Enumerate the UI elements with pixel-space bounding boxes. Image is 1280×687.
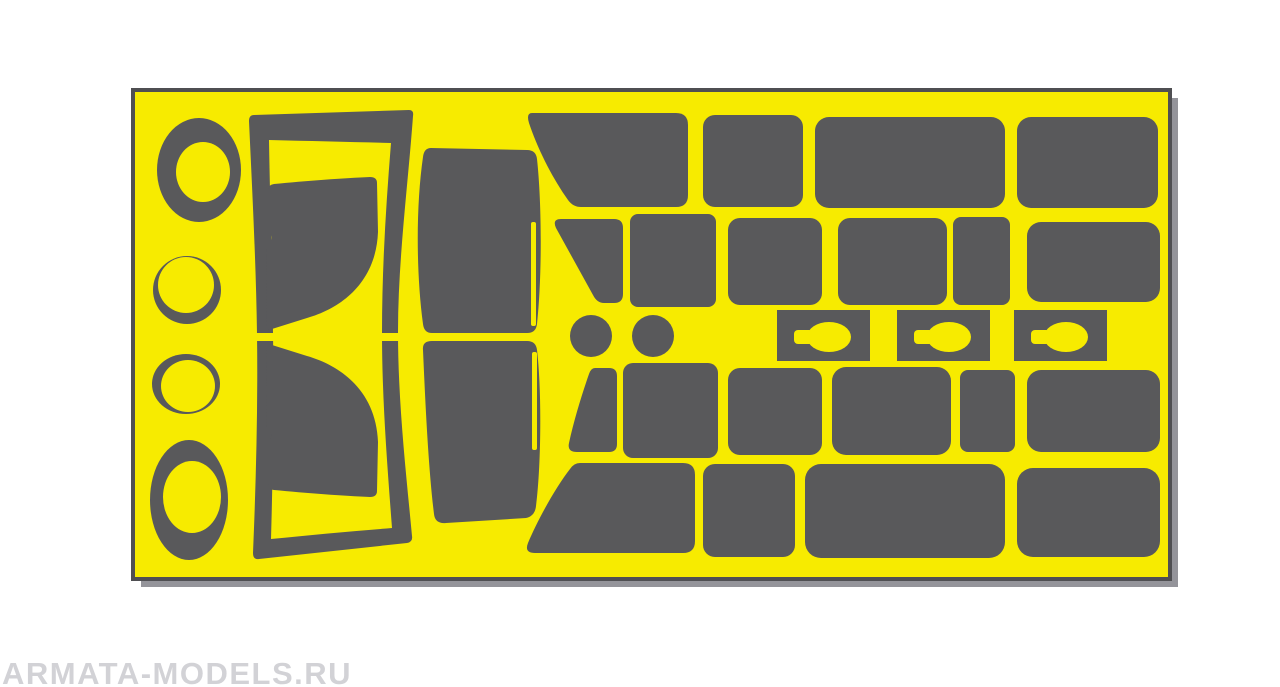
product-image: ARMATA-MODELS.RU: [0, 0, 1280, 687]
side-window-mask-row1-c: [1017, 117, 1158, 208]
side-window-mask-row1-a: [703, 115, 803, 207]
watermark: ARMATA-MODELS.RU: [2, 656, 352, 687]
side-window-mask-row4-b: [728, 368, 822, 455]
round-mask-small-b: [632, 315, 674, 357]
side-window-mask-row4-c: [832, 367, 951, 455]
side-window-mask-row5-b: [805, 464, 1005, 558]
keyhole-cutout-bow-1: [807, 322, 851, 352]
mask-sheet: [133, 90, 1178, 587]
windshield-top-slit: [531, 222, 536, 326]
side-window-mask-row4-e: [1027, 370, 1160, 452]
mask-sheet-svg: [0, 0, 1280, 687]
windshield-mask-bottom: [423, 341, 540, 523]
side-window-mask-row4-d: [960, 370, 1015, 452]
windshield-bottom-slit: [532, 352, 537, 450]
keyhole-cutout-bow-3: [1044, 322, 1088, 352]
side-window-mask-row5-a: [703, 464, 795, 557]
windshield-mask-top: [418, 148, 541, 333]
keyhole-cutout-bow-2: [927, 322, 971, 352]
ring-mask-4-inner: [163, 461, 221, 533]
side-window-mask-row2-c: [838, 218, 947, 305]
side-window-mask-row2-a: [630, 214, 716, 307]
ring-mask-1-inner: [176, 142, 230, 202]
side-window-mask-row1-b: [815, 117, 1005, 208]
ring-mask-2-inner: [158, 257, 214, 313]
round-mask-small-a: [570, 315, 612, 357]
door-frame-split-left: [247, 333, 277, 341]
ring-mask-3-inner: [161, 360, 215, 412]
side-window-mask-row2-b: [728, 218, 822, 305]
side-window-mask-row2-e: [1027, 222, 1160, 302]
door-frame-split-right: [376, 333, 402, 341]
side-window-mask-row4-a: [623, 363, 718, 458]
side-window-mask-row5-c: [1017, 468, 1160, 557]
side-window-mask-row2-d: [953, 217, 1010, 305]
